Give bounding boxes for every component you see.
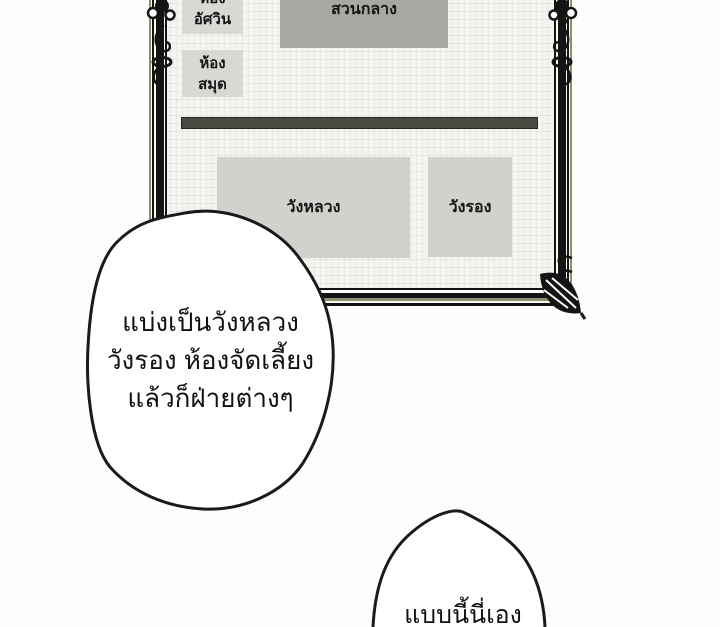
map-room-secondary-palace-label: วังรอง bbox=[449, 197, 492, 218]
speech-bubble-main-text: แบ่งเป็นวังหลวง วังรอง ห้องจัดเลี้ยง แล้… bbox=[88, 303, 333, 417]
frame-right-scroll-ornament-icon bbox=[544, 0, 580, 90]
map-room-library-label-line2: สมุด bbox=[198, 74, 227, 95]
speech-bubble-bottom-text: แบบนี้นี่เอง bbox=[378, 598, 548, 627]
speech-main-line3: แล้วก็ฝ่ายต่างๆ bbox=[88, 379, 333, 417]
map-room-central-garden: สวนกลาง bbox=[280, 0, 448, 48]
map-divider-bar bbox=[181, 117, 538, 129]
map-room-knight-label-line2: อัศวิน bbox=[194, 9, 231, 30]
speech-main-line1: แบ่งเป็นวังหลวง bbox=[88, 303, 333, 341]
map-room-library-label-line1: ห้อง bbox=[199, 53, 225, 74]
frame-left-scroll-ornament-icon bbox=[144, 0, 180, 90]
map-room-library: ห้อง สมุด bbox=[182, 50, 243, 97]
speech-main-line2: วังรอง ห้องจัดเลี้ยง bbox=[88, 341, 333, 379]
comic-panel: ห้อง อัศวิน สวนกลาง ห้อง สมุด วังหลวง วั… bbox=[0, 0, 720, 627]
map-room-knight: ห้อง อัศวิน bbox=[182, 0, 243, 34]
map-room-secondary-palace: วังรอง bbox=[428, 157, 512, 257]
map-room-knight-label-line1: ห้อง bbox=[199, 0, 225, 9]
speech-bottom-line1: แบบนี้นี่เอง bbox=[378, 598, 548, 627]
frame-leaf-ornament-icon bbox=[532, 268, 586, 320]
map-room-central-garden-label: สวนกลาง bbox=[331, 0, 397, 20]
